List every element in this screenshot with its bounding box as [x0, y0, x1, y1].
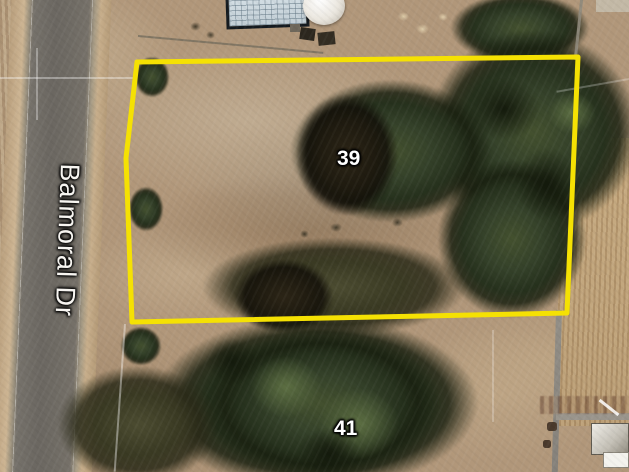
yard-debris: [543, 440, 551, 448]
tree-canopy: [55, 364, 221, 472]
tree-canopy: [120, 326, 162, 366]
parcel-line: [492, 330, 494, 422]
ground-debris: [300, 230, 309, 238]
canopy-shadow-clump: [206, 338, 258, 384]
neighbor-building: [603, 452, 629, 468]
canopy-shadow-clump: [516, 148, 578, 220]
yard-debris: [317, 31, 335, 46]
tree-canopy: [128, 186, 164, 232]
ground-rock: [416, 24, 429, 34]
ground-debris: [206, 31, 215, 39]
parcel-line: [36, 48, 38, 120]
ground-rock: [398, 12, 409, 21]
neighbor-building: [591, 423, 629, 455]
ground-debris: [190, 22, 201, 31]
satellite-map[interactable]: 39 41 Balmoral Dr: [0, 0, 629, 472]
neighbor-pad: [596, 0, 629, 12]
ground-debris: [392, 218, 403, 227]
parcel-line: [0, 77, 137, 79]
canopy-light-clump: [548, 92, 596, 134]
ground-rock: [438, 13, 448, 21]
yard-debris: [290, 24, 300, 32]
road-name-label: Balmoral Dr: [51, 163, 83, 317]
canopy-shadow-clump: [468, 78, 540, 140]
yard-debris: [547, 422, 557, 431]
canopy-light-clump: [250, 356, 322, 418]
yard-debris: [299, 27, 316, 41]
ground-debris: [330, 223, 342, 232]
parcel-number-label: 41: [334, 418, 357, 439]
parcel-number-label: 39: [337, 148, 360, 169]
